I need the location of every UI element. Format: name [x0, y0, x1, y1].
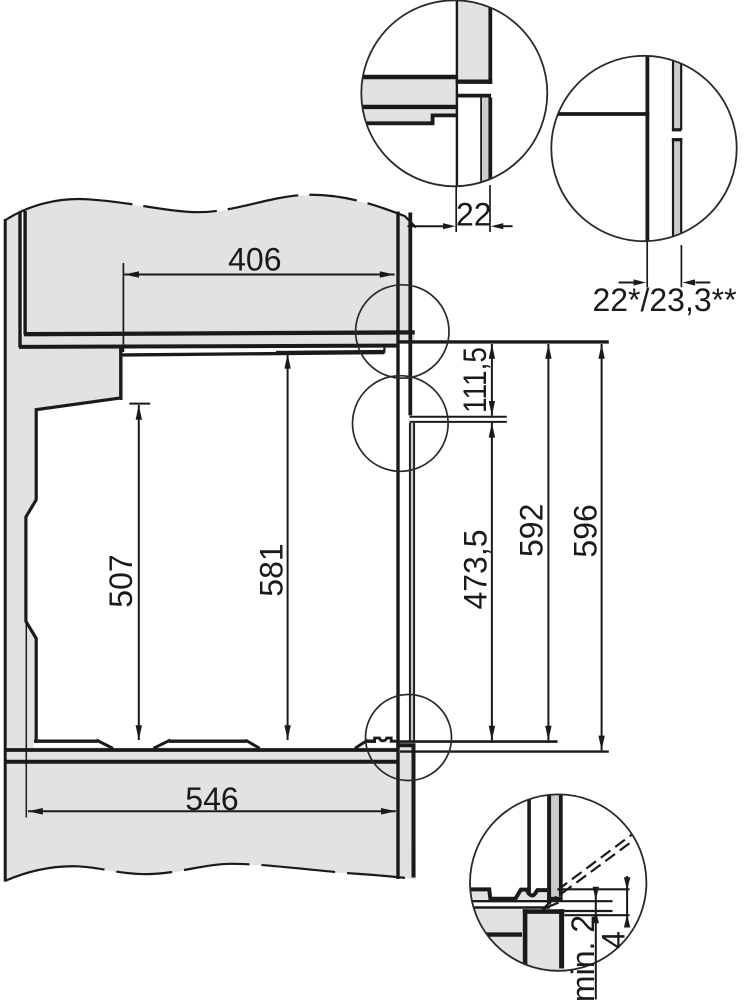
svg-text:22*/23,3**: 22*/23,3** — [592, 282, 736, 318]
svg-text:546: 546 — [185, 781, 238, 817]
svg-text:592: 592 — [513, 504, 549, 557]
svg-text:507: 507 — [103, 554, 139, 607]
svg-text:581: 581 — [254, 543, 290, 596]
svg-text:473,5: 473,5 — [458, 529, 494, 609]
svg-text:4: 4 — [596, 931, 632, 949]
svg-text:406: 406 — [228, 242, 281, 278]
svg-text:22: 22 — [456, 196, 492, 232]
svg-text:596: 596 — [568, 504, 604, 557]
svg-text:111,5: 111,5 — [457, 347, 493, 413]
svg-text:min. 2: min. 2 — [565, 915, 601, 1000]
